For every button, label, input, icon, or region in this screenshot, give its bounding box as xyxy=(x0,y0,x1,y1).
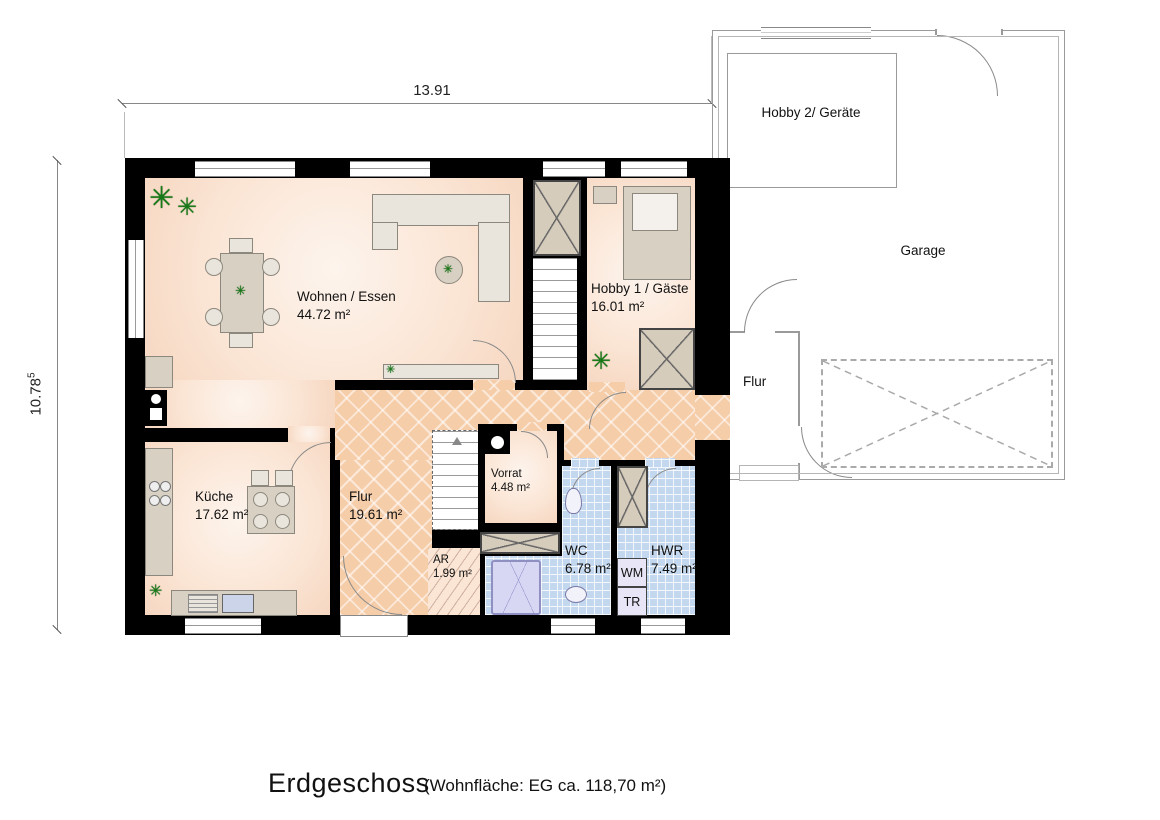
room-wohnen-ext xyxy=(145,380,335,428)
label-hwr-name: HWR xyxy=(651,543,683,558)
door-opening-hobby1 xyxy=(589,382,625,392)
plant-icon: ✳ xyxy=(149,584,162,600)
fireplace xyxy=(145,390,167,426)
label-flur-name: Flur xyxy=(349,489,372,504)
stair-direction-arrow xyxy=(452,437,462,445)
kitchen-counter-left xyxy=(145,448,173,576)
garage-top-door-arc xyxy=(937,35,998,96)
window-wohnen-3 xyxy=(543,161,605,177)
garage-flur-wall xyxy=(775,331,800,333)
garage-entry-step xyxy=(739,465,799,481)
room-hobby2 xyxy=(727,53,897,188)
fireplace-dot xyxy=(151,394,161,404)
kitchen-chair xyxy=(253,492,268,507)
dryer-label: TR xyxy=(624,595,641,609)
kitchen-chair xyxy=(275,514,290,529)
kitchen-chair xyxy=(275,492,290,507)
parking-x-icon xyxy=(823,361,1051,466)
label-ar-name: AR xyxy=(433,554,449,566)
parking-space xyxy=(821,359,1053,468)
label-ar: AR 1.99 m² xyxy=(433,554,472,582)
sofa-right xyxy=(478,222,510,302)
dryer: TR xyxy=(617,587,647,616)
stove-burner xyxy=(160,481,171,492)
window-wohnen-1 xyxy=(195,161,295,177)
plan-subtitle: (Wohnfläche: EG ca. 118,70 m²) xyxy=(424,776,666,796)
window-hobby1 xyxy=(621,161,687,177)
wardrobe-vorrat xyxy=(480,532,560,554)
coffee-table: ✳ xyxy=(435,256,463,284)
label-ar-area: 1.99 m² xyxy=(433,568,472,580)
garage-top-door-opening xyxy=(935,29,1003,35)
extension-line xyxy=(124,112,125,158)
bed-pillow xyxy=(632,193,678,231)
dining-chair xyxy=(205,258,223,276)
plant-icon: ✳ xyxy=(443,263,453,275)
kitchen-chair xyxy=(251,470,269,486)
washing-machine-label: WM xyxy=(621,566,643,580)
label-kueche-name: Küche xyxy=(195,489,233,504)
dining-chair xyxy=(205,308,223,326)
stove-burner xyxy=(160,495,171,506)
kitchen-chair xyxy=(253,514,268,529)
label-vorrat-name: Vorrat xyxy=(491,468,522,480)
door-opening-wc xyxy=(571,458,599,468)
label-wohnen-name: Wohnen / Essen xyxy=(297,289,396,304)
window-hwr xyxy=(641,618,685,634)
garage-flur-wall xyxy=(798,331,800,426)
vorrat-column xyxy=(485,431,510,454)
wardrobe-stair-top xyxy=(533,180,581,256)
label-hwr-area: 7.49 m² xyxy=(651,560,697,578)
shower xyxy=(491,560,541,615)
label-wc-name: WC xyxy=(565,543,588,558)
chimney xyxy=(145,356,173,388)
label-wc-area: 6.78 m² xyxy=(565,560,611,578)
door-opening-garage-flur xyxy=(695,395,730,440)
sofa-armrest xyxy=(372,222,398,250)
label-flur: Flur 19.61 m² xyxy=(349,488,402,523)
garage-flur-door-arc xyxy=(744,279,797,332)
staircase-upper xyxy=(533,258,577,380)
window-wohnen-left xyxy=(128,240,144,338)
dimension-line-left xyxy=(57,160,58,630)
door-opening-vorrat xyxy=(517,422,547,431)
dimension-height-label: 10.785 xyxy=(27,372,45,415)
label-hwr: HWR 7.49 m² xyxy=(651,542,697,577)
kitchen-counter-bottom xyxy=(171,590,297,616)
fireplace-box xyxy=(150,408,162,420)
plan-title: Erdgeschoss xyxy=(268,768,430,799)
room-hobby2-label: Hobby 2/ Geräte xyxy=(727,105,895,120)
plant-icon: ✳ xyxy=(149,184,174,214)
label-kueche-area: 17.62 m² xyxy=(195,506,248,524)
stove-burner xyxy=(149,481,160,492)
main-house: ✳ ✳ ✳ ✳ ✳ ✳ xyxy=(125,158,730,635)
label-hobby1: Hobby 1 / Gäste 16.01 m² xyxy=(591,280,689,315)
vorrat-column-dot xyxy=(491,436,504,449)
label-vorrat-area: 4.48 m² xyxy=(491,482,530,494)
dining-chair xyxy=(229,238,253,253)
toilet xyxy=(565,586,587,603)
dimension-height-sup: 5 xyxy=(27,372,38,378)
plant-icon: ✳ xyxy=(386,365,395,376)
dining-table: ✳ xyxy=(220,253,264,333)
wc-sink xyxy=(565,488,582,514)
dimension-line-top xyxy=(122,103,712,104)
door-opening-hwr xyxy=(645,458,675,468)
dining-chair xyxy=(262,258,280,276)
entrance-door-opening xyxy=(340,615,408,637)
label-wohnen: Wohnen / Essen 44.72 m² xyxy=(297,288,396,323)
washing-machine: WM xyxy=(617,558,647,587)
label-wohnen-area: 44.72 m² xyxy=(297,306,396,324)
dining-chair xyxy=(229,333,253,348)
dish-rack xyxy=(188,594,218,613)
kitchen-chair xyxy=(275,470,293,486)
staircase-lower xyxy=(432,430,482,530)
floorplan-canvas: 13.91 10.785 Hobby 2/ Geräte Garage Flur xyxy=(0,0,1160,820)
label-hobby1-area: 16.01 m² xyxy=(591,298,689,316)
kitchen-sink xyxy=(222,594,254,613)
plant-icon: ✳ xyxy=(177,196,197,220)
dimension-width-label: 13.91 xyxy=(400,82,464,99)
room-garage-label: Garage xyxy=(863,243,983,258)
label-hobby1-name: Hobby 1 / Gäste xyxy=(591,281,689,296)
nightstand xyxy=(593,186,617,204)
plant-icon: ✳ xyxy=(591,350,611,374)
plant-icon: ✳ xyxy=(235,284,246,297)
garage-building: Hobby 2/ Geräte Garage Flur xyxy=(712,30,1065,480)
wardrobe-hobby1 xyxy=(639,328,695,390)
dining-chair xyxy=(262,308,280,326)
label-vorrat: Vorrat 4.48 m² xyxy=(491,468,530,496)
label-flur-area: 19.61 m² xyxy=(349,506,402,524)
bed xyxy=(623,186,691,280)
label-kueche: Küche 17.62 m² xyxy=(195,488,248,523)
door-opening-kueche xyxy=(288,426,330,442)
dimension-height-value: 10.78 xyxy=(28,378,45,416)
sideboard: ✳ xyxy=(383,364,499,379)
window-wohnen-2 xyxy=(350,161,430,177)
garage-flur-door-arc2 xyxy=(801,427,852,478)
label-wc: WC 6.78 m² xyxy=(565,542,611,577)
window-kueche xyxy=(185,618,261,634)
stove-burner xyxy=(149,495,160,506)
garage-window xyxy=(761,27,871,39)
hwr-cabinet xyxy=(617,466,648,528)
garage-flur-label: Flur xyxy=(743,374,766,389)
window-wc xyxy=(551,618,595,634)
